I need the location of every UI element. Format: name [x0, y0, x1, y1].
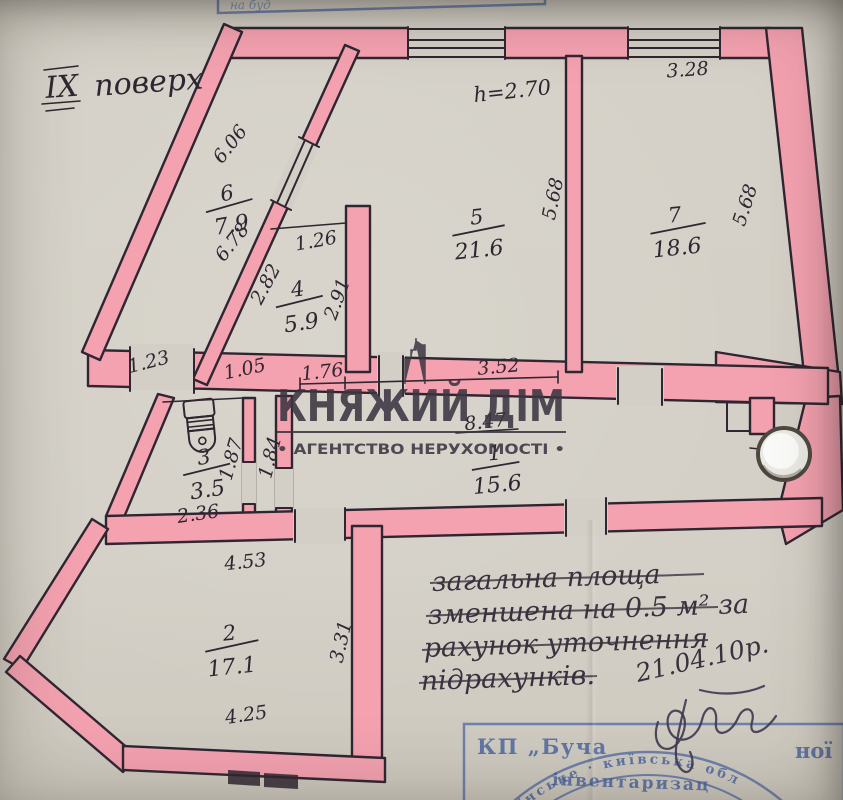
window-symbol-top-right: [628, 25, 720, 61]
watermark-subtitle: • АГЕНТСТВО НЕРУХОМОСТІ •: [277, 442, 565, 458]
bottom-stamp: українське · київська обл КП „Буча ної і…: [440, 724, 843, 800]
room-number: 6: [218, 180, 235, 206]
door-gap-hall: [564, 498, 608, 536]
room-number: 5: [469, 204, 485, 229]
stamp-org-prefix: КП „Буча: [477, 734, 608, 759]
wall-room2-left-diagonal: [4, 519, 108, 669]
dim-425: 4.25: [223, 701, 269, 729]
dim-606: 6.06: [209, 121, 252, 168]
door-gap-room3: [242, 462, 256, 504]
stamp-org-suffix: ної: [795, 738, 832, 763]
room-number: 7: [667, 202, 683, 227]
room-label-5: 5 21.6: [449, 202, 508, 265]
room-label-2: 2 17.1: [202, 618, 262, 682]
toilet-line: [188, 425, 214, 428]
scanned-floor-plan-page: 6 7.9 4 5.9 5 21.6 7 18.6 3: [0, 0, 843, 800]
window-mark: [264, 773, 298, 789]
floor-label: ІХ поверх: [42, 61, 204, 111]
door-gap-corridor: [275, 468, 293, 508]
top-stamp-fragment: на буд: [218, 0, 545, 13]
dim-568-right: 5.68: [728, 182, 762, 229]
window-gap: [628, 25, 720, 61]
niche-outline: [727, 402, 750, 431]
floor-plan-drawing: 6 7.9 4 5.9 5 21.6 7 18.6 3: [0, 0, 843, 800]
window-symbol-diagonal: [271, 137, 319, 210]
handwritten-note: загальна площа зменшена на 0.5 м² за рах…: [419, 559, 771, 697]
stamp-fragment-text: на буд: [230, 0, 271, 12]
room-area: 21.6: [452, 236, 504, 266]
wall-stub-right: [750, 398, 774, 434]
window-symbol-top-left: [408, 25, 505, 61]
dim-453: 4.53: [222, 549, 267, 575]
room-number: 4: [288, 276, 306, 302]
room-area: 15.6: [472, 471, 523, 500]
room-label-4: 4 5.9: [272, 274, 328, 339]
wall-room5-room7: [566, 56, 582, 372]
toilet-drain: [199, 437, 207, 445]
floor-roman: ІХ: [43, 69, 81, 106]
door-gap-room2: [293, 508, 345, 544]
height-note: h=2.70: [472, 75, 552, 107]
hole-punch: [758, 428, 810, 480]
stamp-center-text: інвентаризац: [552, 770, 711, 796]
floor-underline: [46, 108, 74, 111]
room-area: 18.6: [651, 234, 702, 264]
room-area: 5.9: [282, 309, 320, 339]
signature-tail: [700, 686, 764, 693]
toilet-line: [187, 420, 213, 423]
floor-word: поверх: [93, 61, 204, 104]
dim-328: 3.28: [666, 58, 710, 83]
room-area: 17.1: [206, 653, 257, 683]
room-number: 2: [221, 620, 238, 645]
wall-right-upper: [766, 28, 840, 392]
watermark-title: КНЯЖИЙ ДІМ: [277, 379, 565, 432]
window-gap: [408, 25, 505, 61]
wall-room3-diagonal: [106, 394, 174, 522]
signature-stroke: [656, 708, 776, 749]
window-mark: [228, 770, 260, 786]
room-label-7: 7 18.6: [648, 200, 710, 264]
signature: [656, 686, 776, 772]
wall-room2-right: [352, 526, 382, 762]
dim-126: 1.26: [293, 227, 338, 256]
dim-352: 3.52: [476, 354, 520, 380]
dim-568-left: 5.68: [538, 176, 568, 222]
hole-highlight: [763, 433, 799, 469]
door-gap-room7: [616, 366, 664, 406]
wall-room2-bottom-diagonal: [6, 656, 137, 772]
